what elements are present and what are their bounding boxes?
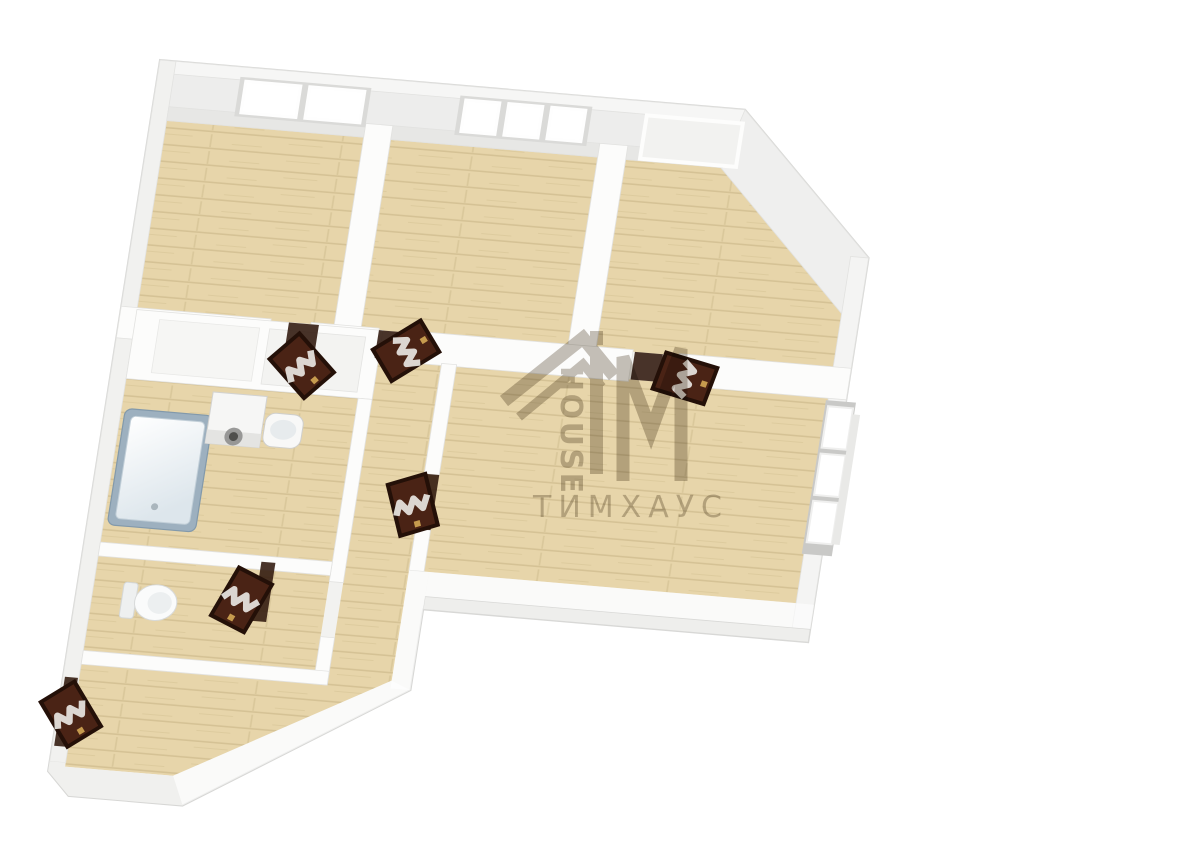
watermark-house-label: HOUSE xyxy=(553,366,588,496)
sink xyxy=(261,412,304,449)
window-room-top-right xyxy=(640,115,743,167)
floor-plan-canvas: HOUSE ТИМХАУС xyxy=(0,0,1200,848)
watermark-brand-text: ТИМХАУС xyxy=(532,490,729,525)
floor-bedroom-top-left xyxy=(137,120,364,326)
bathtub xyxy=(107,408,213,532)
logo-letter-i-stem xyxy=(590,352,603,474)
apartment-plan xyxy=(27,58,906,848)
washing-machine xyxy=(205,392,267,448)
logo-letter-i-dot xyxy=(590,331,603,345)
floor-plan-3d-render: HOUSE ТИМХАУС xyxy=(0,0,1200,848)
floor-bedroom-top-middle xyxy=(361,140,598,347)
